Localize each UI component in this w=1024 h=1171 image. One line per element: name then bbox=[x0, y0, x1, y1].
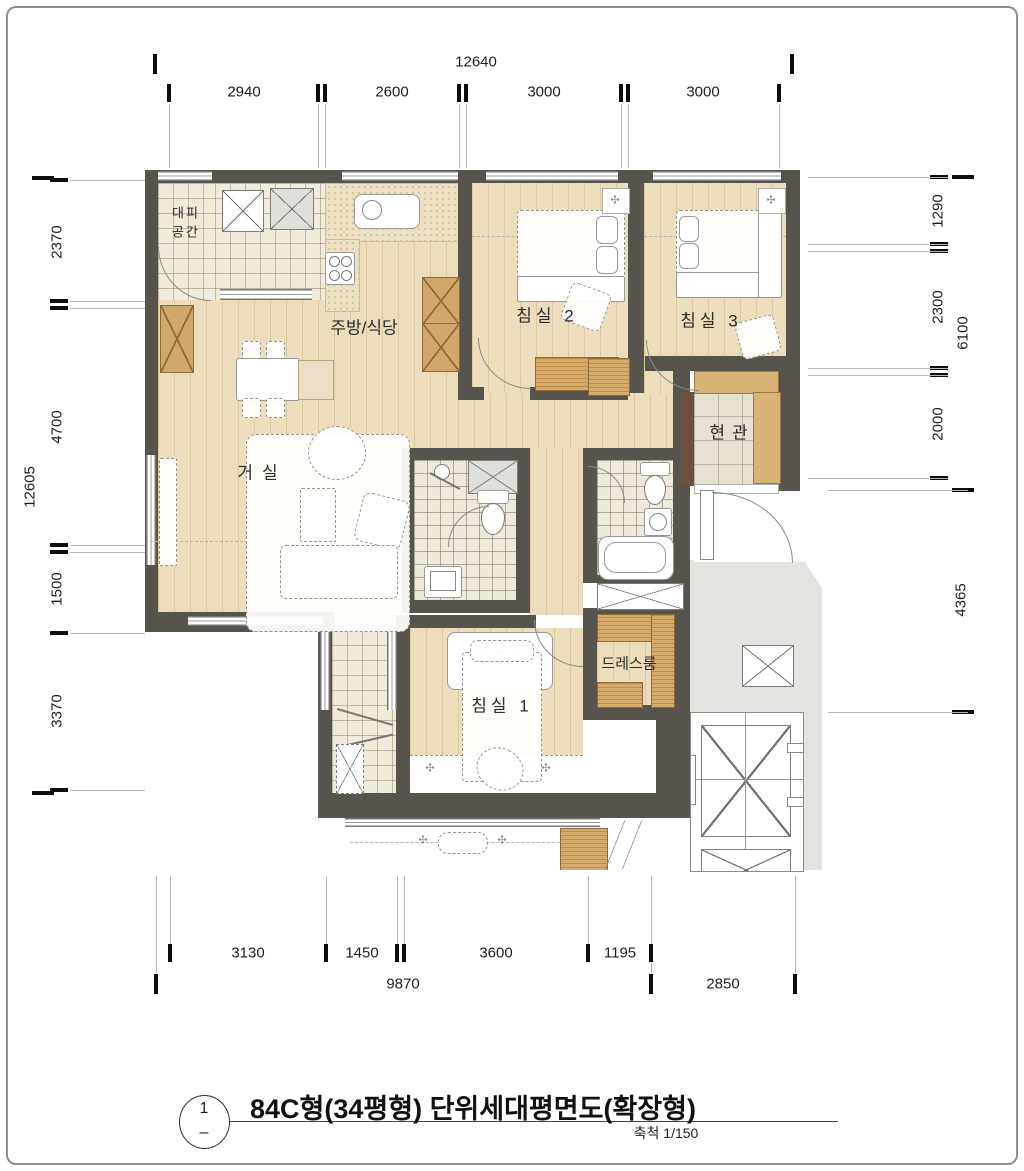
dim-left-seg4: 3370 bbox=[49, 694, 66, 727]
hall-wardrobe bbox=[588, 358, 630, 396]
dim-tick bbox=[154, 974, 158, 994]
ext-line bbox=[621, 104, 622, 168]
dim-right-seg2: 2300 bbox=[930, 290, 947, 323]
dress-wardrobe-bottom bbox=[597, 682, 643, 708]
vent-icon: ✣ bbox=[766, 194, 775, 207]
kitchen-island bbox=[298, 360, 334, 400]
neighbor-window bbox=[345, 818, 600, 827]
dim-right-group: 6100 bbox=[955, 316, 972, 349]
room-label-kitchen: 주방/식당 bbox=[330, 314, 397, 339]
wall-bed2-bed3 bbox=[628, 183, 644, 393]
bath2-toilet-tank bbox=[640, 462, 670, 476]
dim-tick bbox=[50, 306, 68, 310]
ext-line bbox=[70, 790, 145, 791]
shoe-cabinet-top bbox=[694, 371, 779, 394]
wall-bed1-dress bbox=[583, 612, 597, 715]
tv-cabinet bbox=[159, 458, 177, 566]
ext-line bbox=[808, 177, 948, 178]
dim-tick bbox=[586, 944, 590, 962]
window-bedroom3 bbox=[653, 171, 781, 181]
wall-unit-bottom bbox=[318, 793, 690, 818]
living-sofa bbox=[280, 545, 398, 599]
basin bbox=[649, 513, 667, 531]
dim-tick bbox=[153, 54, 157, 74]
drawing-scale: 축척 1/150 bbox=[634, 1123, 699, 1143]
ext-line bbox=[70, 545, 145, 546]
vent-icon: ✣ bbox=[418, 834, 427, 847]
wall-bed1-utility bbox=[396, 615, 410, 795]
dim-tick bbox=[619, 84, 623, 102]
burner bbox=[341, 270, 352, 281]
ext-line bbox=[808, 368, 948, 369]
dim-tick bbox=[777, 84, 781, 102]
burner bbox=[329, 270, 340, 281]
ext-line bbox=[70, 180, 145, 181]
floor-hallway-vertical bbox=[530, 448, 583, 615]
dim-tick bbox=[952, 175, 974, 179]
bed2-pillow bbox=[596, 246, 618, 274]
wall-hall-north-a bbox=[458, 387, 484, 400]
dim-left-seg3: 1500 bbox=[49, 572, 66, 605]
dim-right-seg1: 1290 bbox=[930, 194, 947, 227]
window-kitchen bbox=[342, 171, 458, 181]
window-utility-right bbox=[387, 632, 397, 710]
dress-wardrobe-top bbox=[597, 614, 655, 642]
living-lounge-chair bbox=[308, 426, 366, 480]
bath1-toilet-tank bbox=[477, 490, 509, 504]
living-side-cabinet bbox=[160, 305, 194, 373]
shaft-bath2-duct bbox=[597, 583, 684, 610]
drawing-number: 1 bbox=[200, 1100, 209, 1118]
drawing-number-dash: – bbox=[200, 1124, 209, 1142]
dim-tick bbox=[649, 944, 653, 962]
ext-line bbox=[70, 633, 145, 634]
dim-left-overall: 12605 bbox=[22, 466, 39, 508]
ext-line bbox=[156, 876, 157, 988]
bathtub bbox=[598, 536, 674, 580]
neighbor-wardrobe bbox=[560, 828, 608, 870]
window-bedroom2 bbox=[486, 171, 618, 181]
vent-icon: ✣ bbox=[610, 194, 619, 207]
neighbor-stair-line bbox=[622, 820, 642, 870]
elevator-centerline-v bbox=[745, 713, 746, 871]
ext-line bbox=[828, 712, 968, 713]
room-label-bedroom3: 침실 3 bbox=[680, 307, 741, 332]
ext-line bbox=[808, 478, 948, 479]
dining-table bbox=[236, 358, 300, 401]
bed2-pillow bbox=[596, 216, 618, 244]
ext-line bbox=[651, 876, 652, 988]
ext-line bbox=[466, 104, 467, 168]
dim-tick bbox=[50, 788, 68, 792]
wall-bath1-right bbox=[516, 448, 530, 613]
room-label-bedroom1: 침실 1 bbox=[471, 692, 532, 717]
wall-bed1-top bbox=[410, 615, 536, 628]
room-label-entrance: 현관 bbox=[709, 419, 754, 444]
wall-corner-elevator bbox=[656, 718, 690, 796]
dim-left-seg1: 2370 bbox=[49, 225, 66, 258]
ext-line bbox=[70, 301, 145, 302]
dim-tick bbox=[50, 543, 68, 547]
elevator-shaft-2 bbox=[701, 849, 791, 872]
ext-line bbox=[325, 104, 326, 168]
burner bbox=[341, 256, 352, 267]
dim-tick bbox=[168, 944, 172, 962]
ext-line bbox=[169, 104, 170, 168]
dim-tick bbox=[649, 974, 653, 994]
room-label-bedroom2: 침실 2 bbox=[516, 302, 577, 327]
dim-bottom-seg2: 1450 bbox=[345, 945, 378, 962]
bed3-pillow bbox=[679, 243, 699, 269]
dim-tick bbox=[316, 84, 320, 102]
ext-line bbox=[628, 104, 629, 168]
vent-icon: ✣ bbox=[497, 834, 506, 847]
dim-top-seg3: 3000 bbox=[527, 84, 560, 101]
wall-right-upper bbox=[786, 170, 800, 371]
kitchen-stove bbox=[325, 252, 355, 285]
neighbor-unit bbox=[332, 818, 690, 870]
bath2-sink bbox=[644, 508, 672, 536]
bathtub-inner bbox=[604, 542, 666, 573]
bed1-pillow bbox=[470, 640, 534, 662]
dim-bottom-overall: 9870 bbox=[386, 976, 419, 993]
ext-line bbox=[70, 308, 145, 309]
dim-tick bbox=[402, 944, 406, 962]
ext-line bbox=[779, 104, 780, 168]
ext-line bbox=[808, 375, 948, 376]
shaft-bathroom1 bbox=[468, 460, 518, 494]
ext-line bbox=[808, 251, 948, 252]
dim-tick bbox=[790, 54, 794, 74]
dim-tick bbox=[50, 299, 68, 303]
dim-bottom-seg1: 3130 bbox=[231, 945, 264, 962]
pantry-sill-window bbox=[220, 289, 312, 300]
elevator-counterweight bbox=[690, 755, 696, 805]
washer bbox=[336, 744, 364, 794]
ext-line bbox=[828, 490, 968, 491]
wall-bath1-bottom bbox=[402, 600, 530, 613]
entry-bench-strip bbox=[681, 392, 694, 486]
dim-tick bbox=[323, 84, 327, 102]
dim-tick bbox=[395, 944, 399, 962]
dim-tick bbox=[324, 944, 328, 962]
window-evacuation bbox=[158, 171, 212, 181]
elevator-door-jamb-top bbox=[787, 743, 804, 753]
shaft-corridor bbox=[742, 645, 794, 687]
room-label-evacuation-2: 공간 bbox=[172, 222, 200, 241]
basin bbox=[430, 571, 456, 591]
shoe-cabinet-right bbox=[753, 392, 781, 484]
wall-bath1-top bbox=[402, 448, 530, 460]
window-utility-left bbox=[320, 632, 330, 710]
dim-bottom-seg4: 1195 bbox=[604, 945, 636, 962]
elevator-centerline-h bbox=[691, 779, 803, 780]
room-label-evacuation-1: 대피 bbox=[172, 203, 200, 222]
dim-bottom-side: 2850 bbox=[706, 976, 739, 993]
dim-right-lower: 4365 bbox=[953, 583, 970, 616]
dim-tick bbox=[167, 84, 171, 102]
dim-tick bbox=[626, 84, 630, 102]
ext-line bbox=[459, 104, 460, 168]
dim-tick bbox=[50, 631, 68, 635]
elevator-shaft bbox=[701, 725, 791, 837]
living-table bbox=[300, 488, 336, 542]
ext-line bbox=[70, 552, 145, 553]
kitchen-tall-cabinet-upper bbox=[422, 277, 460, 325]
dim-top-seg4: 3000 bbox=[686, 84, 719, 101]
bath1-sink bbox=[424, 566, 462, 598]
drawing-title: 84C형(34평형) 단위세대평면도(확장형) bbox=[250, 1087, 696, 1126]
dim-left-seg2: 4700 bbox=[49, 410, 66, 443]
ext-line bbox=[808, 244, 948, 245]
neighbor-table bbox=[438, 832, 488, 854]
dim-tick bbox=[457, 84, 461, 102]
dim-tick bbox=[50, 178, 68, 182]
dining-chair bbox=[266, 398, 285, 418]
shaft-pantry-gray bbox=[270, 188, 314, 230]
room-label-living: 거실 bbox=[237, 459, 286, 484]
dim-tick bbox=[464, 84, 468, 102]
elevator-door-jamb-bottom bbox=[787, 797, 804, 807]
ext-line bbox=[318, 104, 319, 168]
bed3-pillow bbox=[679, 216, 699, 242]
dim-top-seg1: 2940 bbox=[227, 84, 260, 101]
dim-top-seg2: 2600 bbox=[375, 84, 408, 101]
ext-line bbox=[795, 876, 796, 988]
room-label-dressroom: 드레스룸 bbox=[601, 653, 656, 674]
dim-top-overall: 12640 bbox=[455, 54, 497, 71]
floor-hallway bbox=[458, 393, 690, 448]
kitchen-sink-basin bbox=[362, 200, 382, 220]
vent-icon: ✣ bbox=[541, 762, 550, 775]
shaft-pantry-white bbox=[222, 190, 264, 232]
vent-icon: ✣ bbox=[425, 762, 434, 775]
dim-right-seg3: 2000 bbox=[930, 407, 947, 440]
dim-tick bbox=[793, 974, 797, 994]
dining-chair bbox=[242, 398, 261, 418]
kitchen-tall-cabinet-lower bbox=[422, 323, 460, 372]
wall-kitchen-bed2 bbox=[458, 183, 472, 399]
dim-bottom-seg3: 3600 bbox=[479, 945, 512, 962]
window-living-left bbox=[146, 455, 156, 565]
dim-tick bbox=[50, 550, 68, 554]
burner bbox=[329, 256, 340, 267]
elevator-lobby bbox=[690, 712, 804, 872]
